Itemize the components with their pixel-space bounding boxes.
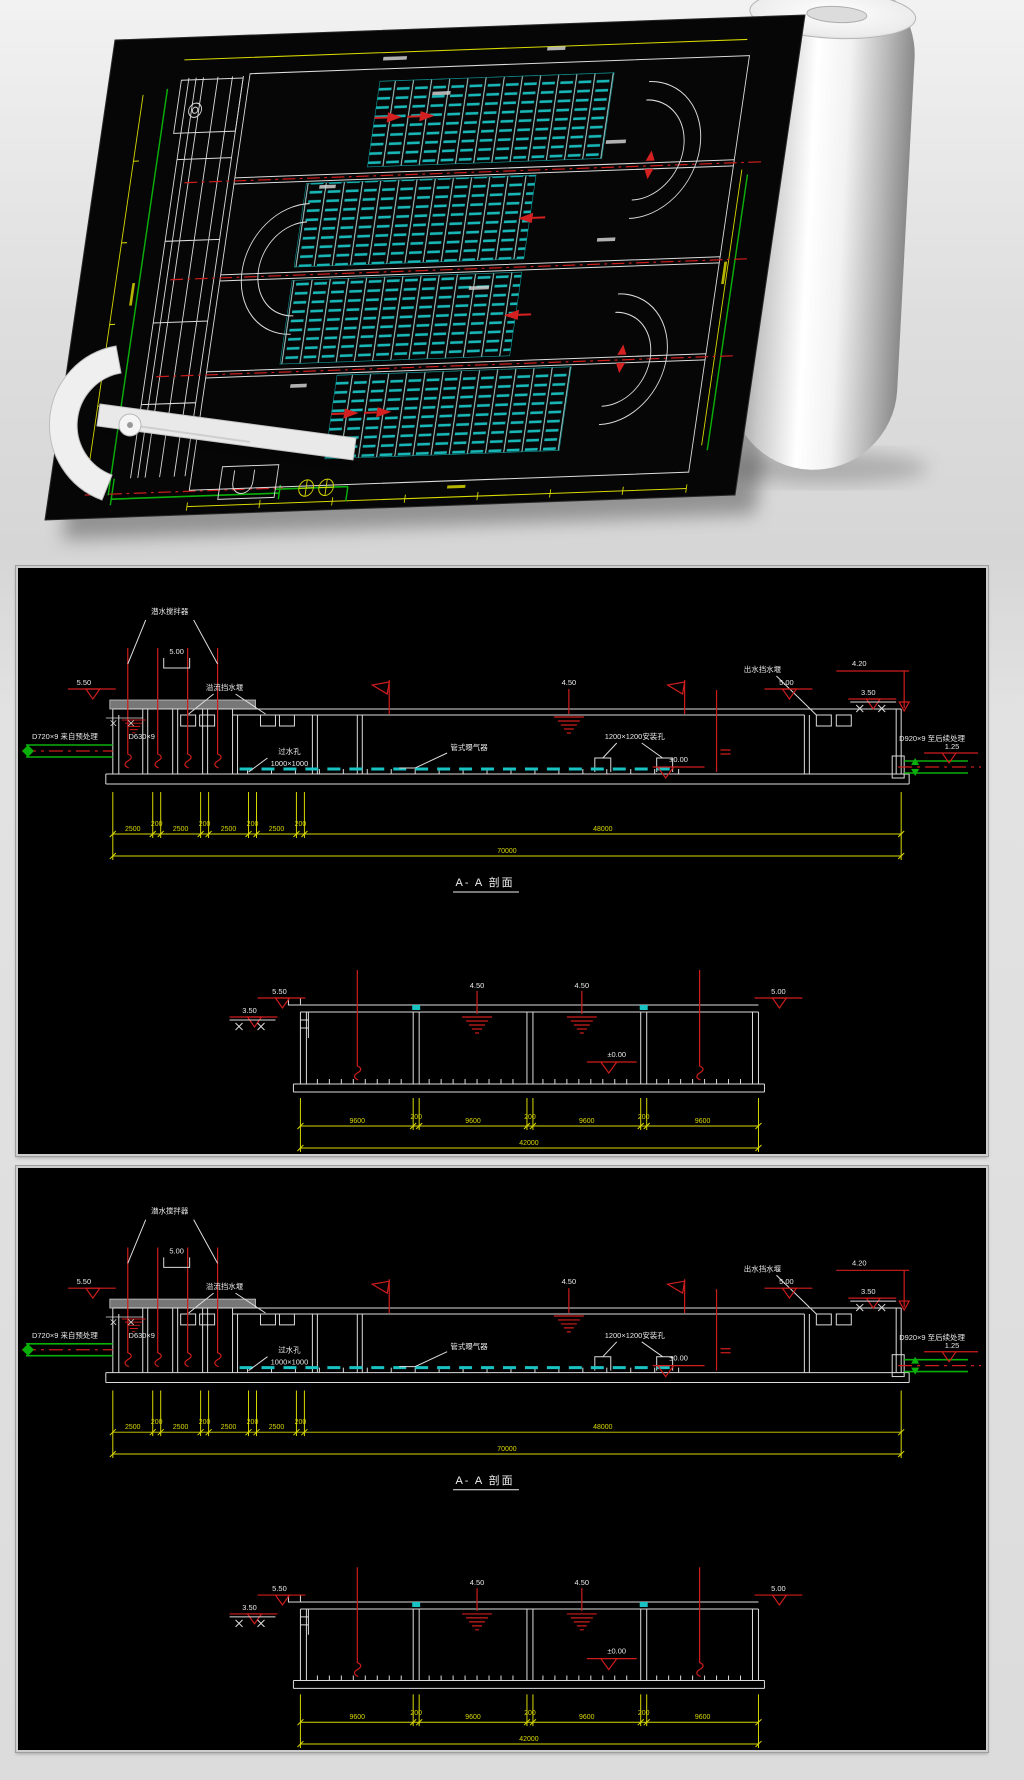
elev-5-00-inlet: 5.00 — [169, 647, 184, 656]
red-guide-line — [717, 1289, 731, 1370]
cross-elev-4-50a: 4.50 — [470, 981, 485, 990]
aeration-grid-4 — [325, 367, 571, 459]
hero-canvas — [0, 0, 1024, 566]
dim-seg: 9600 — [465, 1714, 481, 1721]
dim-seg: 9600 — [465, 1118, 481, 1125]
dim-seg: 2500 — [125, 1424, 141, 1431]
cross-section: 5.50 3.50 4.50 4.50 5.00 ±0.00 9600 200 … — [230, 1567, 803, 1748]
drawing-panel-1: 潜水搅拌器 5.00 5.50 D720×9 来自预处理 D630×9 溢流挡水… — [16, 566, 988, 1156]
water-level-icon — [122, 1319, 146, 1332]
cross-elev-5-50: 5.50 — [272, 1584, 287, 1593]
section-title: A- A 剖面 — [456, 1473, 515, 1487]
dim-seg: 200 — [247, 821, 259, 828]
dim-seg: 200 — [199, 1419, 211, 1426]
cross-elev-0-00: ±0.00 — [607, 1647, 626, 1656]
pipe-arrow-icon — [22, 745, 34, 757]
long-section: 潜水搅拌器 5.00 5.50 D720×9 来自预处理 D630×9 溢流挡水… — [22, 606, 981, 892]
pipe-in-label: D720×9 来自预处理 — [32, 731, 98, 741]
dim-seg: 200 — [151, 1419, 163, 1426]
pipe-in2-label: D630×9 — [129, 732, 155, 741]
dim-seg: 2500 — [269, 1424, 285, 1431]
cross-elev-3-50: 3.50 — [242, 1006, 257, 1015]
dim-seg: 2500 — [221, 1424, 237, 1431]
cross-elev-4-50b: 4.50 — [575, 1578, 590, 1587]
cross-section: 5.50 3.50 4.50 4.50 5.00 ±0.00 9600 200 … — [230, 970, 803, 1152]
mixer-icon — [355, 1567, 704, 1676]
section-title: A- A 剖面 — [456, 875, 515, 889]
dim-seg: 2500 — [221, 826, 237, 833]
floor-level-marker — [587, 1659, 637, 1670]
elev-5-00-right: 5.00 — [779, 1277, 794, 1286]
dim-seg: 9600 — [579, 1118, 595, 1125]
dim-total: 42000 — [519, 1140, 539, 1147]
dim-seg: 200 — [151, 821, 163, 828]
section-dimensions: 2500 200 2500 200 2500 200 2500 200 4800… — [110, 1390, 904, 1458]
dim-seg: 200 — [638, 1710, 650, 1717]
dim-seg: 9600 — [350, 1714, 366, 1721]
hole-label-1: 过水孔 — [278, 1345, 301, 1355]
elevation-marker-icon — [754, 998, 802, 1008]
floor-level-marker — [587, 1062, 637, 1073]
ground-symbol-icon — [106, 1317, 143, 1325]
mixer-bracket — [128, 620, 218, 668]
long-section: 潜水搅拌器 5.00 5.50 D720×9 来自预处理 D630×9 溢流挡水… — [22, 1206, 981, 1490]
pipe-in-label: D720×9 来自预处理 — [32, 1330, 98, 1340]
dim-seg: 200 — [295, 821, 307, 828]
elev-0-00: ±0.00 — [669, 1354, 688, 1363]
dim-seg: 200 — [199, 821, 211, 828]
cross-elev-4-50a: 4.50 — [470, 1578, 485, 1587]
water-level-icon — [567, 1017, 597, 1033]
dim-seg: 200 — [524, 1114, 536, 1121]
elevation-marker-icon — [230, 1017, 278, 1027]
elevation-marker-icon — [848, 699, 896, 709]
cross-elev-0-00: ±0.00 — [607, 1050, 626, 1059]
elev-3-50: 3.50 — [861, 688, 876, 697]
elevation-marker-icon — [68, 1288, 116, 1298]
dim-seg: 200 — [524, 1710, 536, 1717]
cross-floor-ticks — [317, 1079, 740, 1084]
section-drawing: 潜水搅拌器 5.00 5.50 D720×9 来自预处理 D630×9 溢流挡水… — [18, 1168, 986, 1750]
water-level-icon — [567, 1614, 597, 1630]
weir-boxes — [181, 1314, 852, 1325]
drawing-panel-2: 潜水搅拌器 5.00 5.50 D720×9 来自预处理 D630×9 溢流挡水… — [16, 1166, 988, 1752]
elev-4-50: 4.50 — [562, 1277, 577, 1286]
cyan-wall-mark — [640, 1602, 648, 1607]
dim-seg: 9600 — [350, 1118, 366, 1125]
elev-5-00-right: 5.00 — [779, 678, 794, 687]
red-guide-line — [717, 690, 731, 772]
elev-1-25: 1.25 — [945, 1341, 960, 1350]
cyan-wall-mark — [412, 1602, 420, 1607]
ground-symbol-icon — [850, 702, 896, 712]
dim-seg: 9600 — [695, 1118, 711, 1125]
dim-seg: 2500 — [269, 826, 285, 833]
diffuser-label: 管式曝气器 — [450, 742, 488, 752]
weir-left-label: 溢流挡水堰 — [206, 682, 244, 692]
diffuser-leader — [399, 753, 447, 768]
diffuser-label: 管式曝气器 — [450, 1341, 488, 1351]
cross-elev-4-50b: 4.50 — [575, 981, 590, 990]
water-level-icon — [462, 1614, 492, 1630]
water-level-icon — [554, 717, 584, 733]
dim-seg: 2500 — [125, 826, 141, 833]
hero-showcase — [0, 0, 1024, 566]
dim-mid: 48000 — [593, 1424, 613, 1431]
aeration-grid-2 — [294, 175, 536, 267]
cyan-wall-mark — [640, 1005, 648, 1010]
cross-dimensions: 9600 200 9600 200 9600 200 9600 42000 — [297, 1098, 761, 1152]
section-dimensions: 2500 200 2500 200 2500 200 2500 200 4800… — [110, 792, 904, 860]
mixer-label: 潜水搅拌器 — [151, 606, 189, 616]
pipe-in2-label: D630×9 — [129, 1331, 155, 1340]
ground-symbol-icon — [850, 1301, 896, 1311]
ground-symbol-icon — [106, 718, 143, 726]
elevation-marker-icon — [258, 1595, 306, 1605]
pit-label: 1200×1200安装孔 — [605, 731, 666, 741]
cyan-wall-mark — [412, 1005, 420, 1010]
dim-total: 70000 — [497, 1446, 517, 1453]
dim-seg: 2500 — [173, 1424, 189, 1431]
dim-seg: 9600 — [695, 1714, 711, 1721]
hole-label-1: 过水孔 — [278, 746, 301, 756]
dim-seg: 2500 — [173, 826, 189, 833]
hole-label-2: 1000×1000 — [271, 759, 309, 768]
elevation-marker-icon — [754, 1595, 802, 1605]
dim-mid: 48000 — [593, 826, 613, 833]
water-level-icon — [462, 1017, 492, 1033]
elevation-marker-icon — [848, 1298, 896, 1308]
inlet-top-slab — [110, 700, 256, 709]
dim-seg: 200 — [410, 1114, 422, 1121]
pit-leaders — [603, 743, 663, 758]
cross-dimensions: 9600 200 9600 200 9600 200 9600 42000 — [297, 1694, 761, 1748]
elevation-marker-icon — [68, 689, 116, 699]
aeration-grid-1 — [367, 73, 614, 167]
mixer-label: 潜水搅拌器 — [151, 1206, 189, 1216]
cross-structure — [288, 998, 764, 1092]
tank-structure — [106, 709, 909, 784]
elevation-marker-icon — [258, 998, 306, 1008]
pit-label: 1200×1200安装孔 — [605, 1330, 666, 1340]
inlet-top-slab — [110, 1299, 256, 1308]
dim-seg: 9600 — [579, 1714, 595, 1721]
water-level-icon — [122, 720, 146, 733]
mixer-icon — [355, 970, 704, 1080]
elev-5-00-inlet: 5.00 — [169, 1246, 184, 1255]
section-drawing: 潜水搅拌器 5.00 5.50 D720×9 来自预处理 D630×9 溢流挡水… — [18, 568, 986, 1154]
weir-right-label: 出水挡水堰 — [744, 1263, 782, 1273]
elevation-marker-icon — [764, 1288, 812, 1298]
weir-right-label: 出水挡水堰 — [744, 664, 782, 674]
dim-total: 70000 — [497, 848, 517, 855]
cross-floor-ticks — [317, 1676, 740, 1681]
hole-label-2: 1000×1000 — [271, 1358, 309, 1367]
mixer-bracket — [128, 1220, 218, 1268]
water-level-icon — [554, 1316, 584, 1332]
weir-boxes — [181, 715, 852, 726]
elev-5-50: 5.50 — [77, 1277, 92, 1286]
elev-4-50: 4.50 — [562, 678, 577, 687]
dim-seg: 200 — [247, 1419, 259, 1426]
elev-4-20: 4.20 — [852, 1258, 867, 1267]
elev-0-00: ±0.00 — [669, 755, 688, 764]
diffuser-leader — [399, 1352, 447, 1367]
cross-elev-5-00: 5.00 — [771, 1584, 786, 1593]
pit-leaders — [603, 1342, 663, 1357]
dim-total: 42000 — [519, 1736, 539, 1743]
elev-1-25: 1.25 — [945, 742, 960, 751]
elev-5-50: 5.50 — [77, 678, 92, 687]
cross-elev-5-50: 5.50 — [272, 987, 287, 996]
dim-seg: 200 — [410, 1710, 422, 1717]
tank-structure — [106, 1308, 909, 1382]
elevation-marker-icon — [764, 689, 812, 699]
cross-elev-5-00: 5.00 — [771, 987, 786, 996]
cross-structure — [288, 1595, 764, 1688]
elevation-marker-icon — [230, 1614, 278, 1624]
dim-seg: 200 — [295, 1419, 307, 1426]
dim-seg: 200 — [638, 1114, 650, 1121]
weir-left-label: 溢流挡水堰 — [206, 1281, 244, 1291]
elev-4-20: 4.20 — [852, 659, 867, 668]
cross-elev-3-50: 3.50 — [242, 1603, 257, 1612]
pipe-arrow-icon — [22, 1344, 34, 1356]
elev-3-50: 3.50 — [861, 1287, 876, 1296]
